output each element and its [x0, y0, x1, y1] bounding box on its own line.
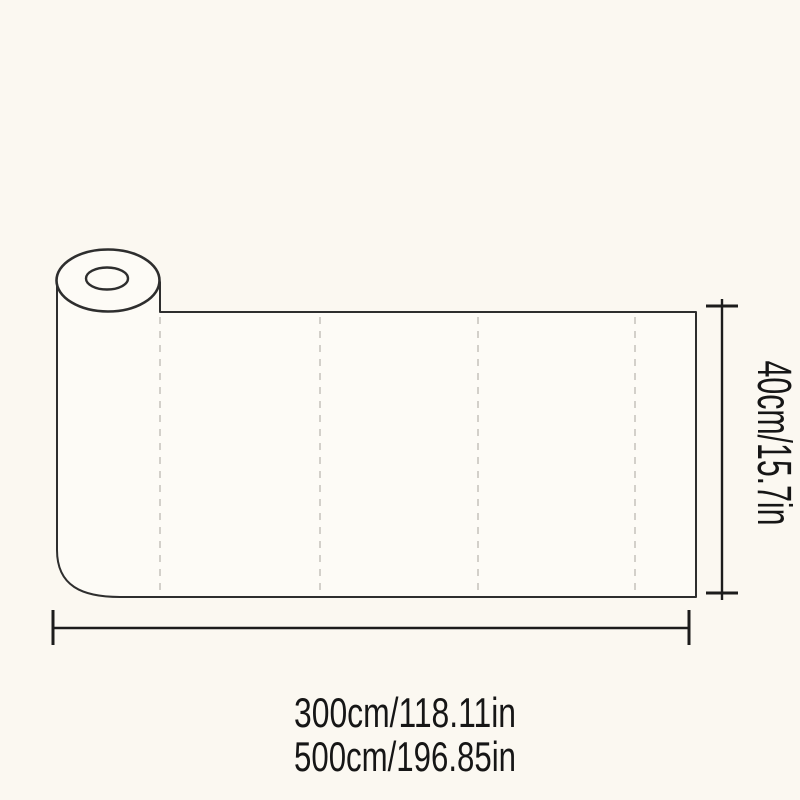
length-labels: 300cm/118.11in 500cm/196.85in [294, 689, 516, 780]
length-label-500cm: 500cm/196.85in [294, 733, 516, 780]
height-label: 40cm/15.7in [747, 361, 800, 526]
roll-illustration [57, 250, 697, 598]
length-label-300cm: 300cm/118.11in [294, 689, 516, 736]
diagram-canvas: 40cm/15.7in 300cm/118.11in 500cm/196.85i… [0, 0, 800, 800]
roll-core-hole-icon [86, 268, 128, 290]
product-dimension-diagram: 40cm/15.7in 300cm/118.11in 500cm/196.85i… [0, 0, 800, 800]
length-dimension [53, 610, 689, 645]
sheet-outline [57, 282, 696, 597]
height-dimension: 40cm/15.7in [706, 299, 800, 600]
